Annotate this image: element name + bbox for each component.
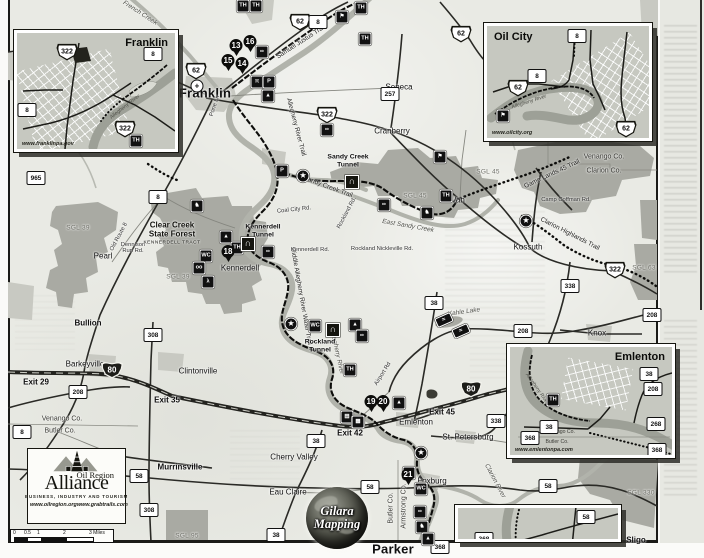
route-shield-58: 58	[539, 479, 558, 493]
county-label-clarion-co: Clarion Co.	[586, 168, 621, 175]
th-icon: TH	[130, 135, 143, 148]
trail-site-marker-20: 20	[377, 395, 390, 408]
town-label-kennerdell: Kennerdell	[221, 264, 259, 273]
route-shield-38: 38	[307, 434, 326, 448]
th-icon: TH	[440, 190, 453, 203]
inset-ins-rd	[621, 32, 627, 132]
tunnel-icon: ∩	[326, 323, 340, 337]
town-label-murrinsville: Murrinsville	[158, 463, 203, 472]
shield-number: 80	[103, 363, 122, 377]
road-label-kennerdell-rd: Kennerdell Rd.	[291, 247, 329, 253]
town-label-st-petersburg: St. Petersburg	[442, 433, 493, 442]
gilara-mapping-logo: Gilara Mapping	[306, 487, 368, 549]
road-line	[391, 34, 402, 128]
inset-county-label: Butler Co.	[545, 439, 568, 445]
horse-icon: ♞	[421, 207, 434, 220]
flag-icon: ⚑	[497, 110, 510, 123]
trail-site-marker-18: 18	[222, 245, 235, 258]
town-label-franklin: Franklin	[179, 86, 231, 101]
town-label-cranberry: Cranberry	[374, 127, 410, 136]
town-label-cherry-valley: Cherry Valley	[270, 453, 317, 462]
inset-ins-rd	[23, 90, 63, 91]
star-icon: ★	[285, 318, 298, 331]
inset-ins-rd	[520, 514, 618, 541]
route-shield-38: 38	[267, 528, 286, 542]
gameland-label-sgl-39: SGL 39	[66, 225, 90, 232]
oil-region-alliance-logo: Oil Region Alliance BUSINESS, INDUSTRY A…	[27, 448, 126, 524]
town-label-emlenton: Emlenton	[399, 418, 433, 427]
scale-tick-3-miles: 3 Miles	[89, 530, 105, 536]
scale-tick-2: 2	[63, 530, 66, 536]
route-shield-38: 38	[540, 420, 559, 434]
horse-icon: ♞	[191, 200, 204, 213]
scale-tick-0-5: 0.5	[24, 530, 31, 536]
alliance-website-oilregion: www.oilregion.org	[30, 502, 77, 508]
inset-map-oilcity: Oil Citywww.oilcity.orgAllegheny River88…	[484, 23, 652, 141]
highway-exit-label-exit-35: Exit 35	[154, 396, 180, 405]
restroom-icon: WC	[415, 483, 428, 496]
town-label-knox: Knox	[588, 329, 606, 338]
bike-icon: ∞	[414, 506, 427, 519]
inset-website-oilcity: www.oilcity.org	[492, 130, 532, 136]
factory-icon: ▦	[352, 416, 365, 429]
flag-icon: ⚑	[434, 151, 447, 164]
highway-exit-label-exit-29: Exit 29	[23, 378, 49, 387]
camp-icon: ▲	[262, 90, 275, 103]
state-forest-tract-label: KENNERDELL TRACT	[143, 239, 200, 248]
town-label-sligo: Sligo	[626, 536, 646, 545]
tunnel-label-sandy-creek-tunnel: Sandy Creek Tunnel	[327, 154, 368, 169]
oil-site-icon	[427, 390, 438, 399]
parking-icon: P	[276, 165, 289, 178]
bike-icon: ∞	[378, 199, 391, 212]
route-shield-368: 368	[521, 431, 540, 445]
tunnel-icon: ∩	[241, 237, 255, 251]
route-shield-8: 8	[18, 103, 37, 117]
binoc-icon: oo	[193, 262, 206, 275]
hiker-icon: λ	[202, 276, 215, 289]
route-shield-368: 368	[648, 443, 667, 457]
route-shield-58: 58	[361, 480, 380, 494]
county-label-venango-co: Venango Co.	[584, 154, 624, 161]
route-shield-965: 965	[27, 171, 46, 185]
town-label-clintonville: Clintonville	[179, 367, 218, 376]
tunnel-icon: ∩	[345, 175, 359, 189]
route-shield-38: 38	[425, 296, 444, 310]
inset-ins-dots	[516, 508, 520, 542]
road-line	[20, 100, 212, 480]
th-icon: TH	[237, 0, 250, 13]
county-label-butler-co: Butler Co.	[44, 428, 75, 435]
inset-map-parker: 58368	[455, 505, 621, 542]
state-forest-label: Clear Creek State ForestKENNERDELL TRACT	[143, 221, 200, 248]
scanned-trail-map: Oil Region Alliance BUSINESS, INDUSTRY A…	[0, 0, 704, 558]
gameland-label-sgl-95: SGL 95	[175, 533, 199, 540]
county-label-butler-co: Butler Co.	[388, 492, 395, 523]
th-icon: TH	[344, 364, 357, 377]
town-label-parker: Parker	[372, 542, 414, 557]
highway-exit-label-exit-42: Exit 42	[337, 429, 363, 438]
road-label-dennison-run-rd: Dennison Run Rd.	[121, 242, 146, 254]
th-icon: TH	[250, 0, 263, 13]
route-shield-338: 338	[487, 414, 506, 428]
bleed-through-text	[664, 25, 697, 275]
inset-map-emlenton: Emlentonwww.emlentonpa.comAllegheny Rive…	[507, 344, 675, 458]
scale-tick-0: 0	[13, 530, 16, 536]
hospital-icon: +	[191, 80, 204, 93]
town-label-barkeyville: Barkeyville	[66, 360, 105, 369]
restroom-icon: WC	[309, 320, 322, 333]
route-shield-308: 308	[140, 503, 159, 517]
derrick-mountains-icon	[51, 450, 103, 472]
inset-ins-riv	[506, 508, 510, 542]
page-edge-line	[700, 0, 702, 310]
scale-tick-1: 1	[37, 530, 40, 536]
map-scale-bar: 00.5123 Miles	[10, 529, 114, 543]
route-shield-368: 368	[475, 532, 494, 542]
inset-website-emlenton: www.emlentonpa.com	[515, 447, 573, 453]
trail-site-marker-14: 14	[236, 57, 249, 70]
road-line	[414, 292, 437, 421]
trail-site-marker-15: 15	[222, 54, 235, 67]
scale-bar-segments	[14, 537, 94, 543]
inset-website-franklin: www.franklinpa.gov	[22, 141, 74, 147]
star-icon: ★	[520, 215, 533, 228]
route-shield-58: 58	[130, 469, 149, 483]
road-label-rockland-nickleville-rd: Rockland Nickleville Rd.	[351, 246, 413, 252]
route-shield-208: 208	[514, 324, 533, 338]
route-shield-58: 58	[577, 510, 596, 524]
highway-exit-label-exit-45: Exit 45	[429, 408, 455, 417]
route-shield-8: 8	[13, 425, 32, 439]
trail-site-marker-21: 21	[402, 468, 415, 481]
inset-title-emlenton: Emlenton	[615, 351, 665, 363]
route-shield-257: 257	[381, 87, 400, 101]
road-label-camp-coffman-rd: Camp Coffman Rd.	[541, 197, 591, 203]
gameland-label-sgl-39: SGL 39	[166, 274, 190, 281]
inset-title-oilcity: Oil City	[494, 31, 533, 43]
county-label-armstrong-co: Armstrong Co.	[401, 483, 408, 528]
town-label-van: Van	[451, 196, 465, 205]
route-shield-8: 8	[528, 69, 547, 83]
route-shield-208: 208	[644, 382, 663, 396]
route-shield-338: 338	[561, 279, 580, 293]
alliance-oil-region-text: Oil Region	[77, 470, 115, 480]
inset-map-franklin: Franklinwww.franklinpa.govAllegheny Rive…	[14, 30, 178, 152]
minor-road-line	[230, 88, 392, 96]
alliance-website-grabtrails: www.grabtrails.com	[77, 502, 128, 508]
tunnel-label-rockland-tunnel: Rockland Tunnel	[305, 339, 336, 354]
route-shield-208: 208	[643, 308, 662, 322]
route-shield-8: 8	[568, 29, 587, 43]
trail-site-marker-16: 16	[244, 35, 257, 48]
gilara-text-line2: Mapping	[314, 518, 361, 531]
th-icon: TH	[547, 394, 560, 407]
town-label-kossuth: Kossuth	[514, 243, 543, 252]
route-shield-8: 8	[144, 47, 163, 61]
town-area-shape	[8, 282, 34, 320]
star-icon: ★	[415, 447, 428, 460]
town-label-pearl: Pearl	[94, 252, 113, 261]
page-margin-bottom	[0, 543, 704, 558]
route-shield-268: 268	[647, 417, 666, 431]
th-icon: TH	[355, 2, 368, 15]
trail-site-marker-13: 13	[230, 39, 243, 52]
route-shield-308: 308	[144, 328, 163, 342]
bike-icon: ∞	[256, 46, 269, 59]
gameland-label-sgl-45: SGL 45	[476, 169, 500, 176]
gameland-label-sgl-330: SGL 330	[627, 490, 655, 497]
town-label-bullion: Bullion	[74, 319, 101, 328]
county-label-venango-co: Venango Co.	[42, 416, 82, 423]
bike-icon: ∞	[321, 124, 334, 137]
alliance-tagline: BUSINESS, INDUSTRY AND TOURISM	[25, 494, 128, 499]
route-shield-208: 208	[69, 385, 88, 399]
bike-icon: ∞	[262, 246, 275, 259]
gameland-label-sgl-45: SGL 45	[403, 193, 427, 200]
flag-icon: ⚑	[336, 11, 349, 24]
alliance-websites: www.oilregion.org www.grabtrails.com	[30, 502, 123, 508]
camp-icon: ▲	[393, 397, 406, 410]
route-shield-8: 8	[309, 15, 328, 29]
shield-number: 80	[462, 382, 481, 396]
camp-icon: ▲	[422, 533, 435, 546]
route-shield-38: 38	[640, 367, 659, 381]
alliance-wordmark: Oil Region Alliance	[30, 472, 123, 494]
town-label-eau-claire: Eau Claire	[269, 488, 306, 497]
bike-icon: ∞	[356, 330, 369, 343]
route-shield-8: 8	[149, 190, 168, 204]
gameland-label-sgl-63: SGL 63	[632, 265, 656, 272]
star-icon: ★	[297, 170, 310, 183]
th-icon: TH	[359, 33, 372, 46]
parking-icon: P	[263, 76, 276, 89]
gameland-area-shape	[640, 200, 657, 240]
